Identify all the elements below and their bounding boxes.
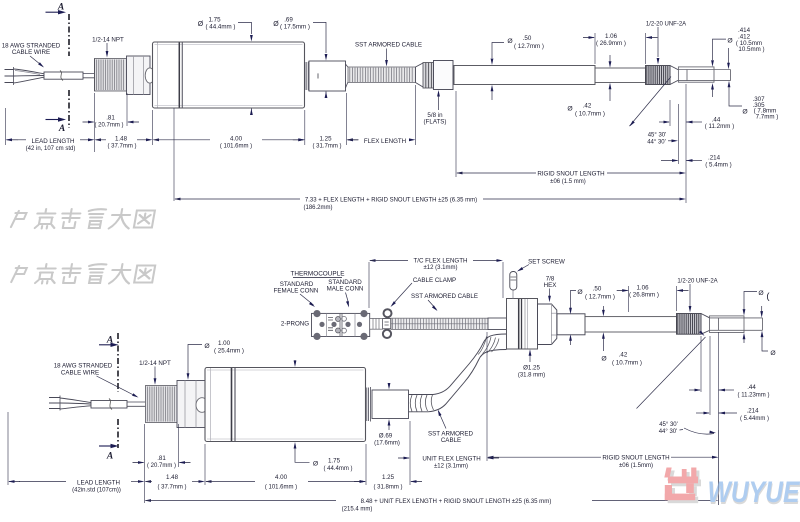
svg-text:8.48 + UNIT FLEX LENGTH + RIGI: 8.48 + UNIT FLEX LENGTH + RIGID SNOUT LE…	[361, 498, 552, 505]
svg-text:(42in.std (107cm)): (42in.std (107cm))	[72, 487, 121, 493]
svg-text:(31.8 mm): (31.8 mm)	[518, 372, 545, 378]
svg-text:A: A	[57, 3, 64, 13]
svg-text:WUYUE: WUYUE	[708, 476, 800, 509]
svg-text:( 101.6mm ): ( 101.6mm )	[265, 485, 297, 491]
svg-text:A: A	[58, 124, 65, 134]
svg-text:( 44.4mm ): ( 44.4mm )	[323, 466, 352, 472]
svg-text:Ø.69: Ø.69	[379, 432, 393, 439]
svg-text:.44: .44	[747, 384, 756, 391]
svg-text:4.00: 4.00	[275, 474, 288, 481]
svg-text:1.75: 1.75	[208, 17, 221, 24]
svg-text:.214: .214	[708, 154, 721, 161]
svg-text:( 5.44mm ): ( 5.44mm )	[740, 416, 769, 422]
svg-text:( 31.7mm ): ( 31.7mm )	[312, 143, 341, 149]
svg-text:CABLE: CABLE	[441, 437, 461, 444]
svg-text:1.48: 1.48	[115, 136, 128, 143]
svg-text:( 44.4mm ): ( 44.4mm )	[206, 24, 236, 31]
svg-text:HEX: HEX	[544, 282, 557, 289]
svg-text:T/C FLEX LENGTH: T/C FLEX LENGTH	[414, 257, 468, 264]
svg-text:(42 in, 107 cm std): (42 in, 107 cm std)	[26, 146, 76, 152]
svg-text:SET SCREW: SET SCREW	[528, 258, 565, 265]
svg-text:.214: .214	[746, 408, 759, 415]
svg-text:FLEX LENGTH: FLEX LENGTH	[364, 138, 406, 145]
svg-text:±06 (1.5mm): ±06 (1.5mm)	[619, 463, 653, 469]
svg-text:7.7mm ): 7.7mm )	[756, 114, 779, 121]
svg-text:Ø: Ø	[313, 460, 319, 467]
svg-text:( 17.5mm ): ( 17.5mm )	[280, 24, 310, 31]
svg-text:1.48: 1.48	[166, 474, 179, 481]
svg-text:7.33 + FLEX LENGTH + RIGID SNO: 7.33 + FLEX LENGTH + RIGID SNOUT LENGTH …	[305, 198, 477, 204]
svg-text:1.25: 1.25	[319, 136, 332, 143]
svg-text:( 26.9mm ): ( 26.9mm )	[596, 40, 626, 47]
svg-text:Ø: Ø	[770, 350, 776, 357]
svg-text:( 101.6mm ): ( 101.6mm )	[220, 143, 252, 149]
svg-text:MALE CONN: MALE CONN	[327, 286, 364, 293]
svg-text:1/2-20 UNF-2A: 1/2-20 UNF-2A	[677, 278, 717, 284]
svg-text:Ø: Ø	[204, 343, 210, 350]
svg-text:±12 (3.1mm): ±12 (3.1mm)	[434, 463, 468, 469]
svg-text:( 11.23mm ): ( 11.23mm )	[738, 393, 770, 399]
svg-text:.42: .42	[583, 103, 592, 110]
svg-text:Ø: Ø	[507, 38, 513, 45]
svg-text:THERMOCOUPLE: THERMOCOUPLE	[291, 270, 345, 277]
svg-text:( 20.7mm ): ( 20.7mm )	[94, 123, 123, 129]
svg-text:LEAD LENGTH: LEAD LENGTH	[77, 479, 120, 486]
svg-text:1/2-14 NPT: 1/2-14 NPT	[139, 360, 171, 367]
svg-text:1/2-20 UNF-2A: 1/2-20 UNF-2A	[646, 21, 686, 27]
svg-text:UNIT FLEX LENGTH: UNIT FLEX LENGTH	[422, 455, 480, 462]
svg-text:RIGID SNOUT LENGTH: RIGID SNOUT LENGTH	[602, 455, 669, 462]
svg-text:RIGID SNOUT LENGTH: RIGID SNOUT LENGTH	[537, 171, 604, 178]
svg-text:±12 (3.1mm): ±12 (3.1mm)	[424, 265, 458, 271]
svg-text:Ø: Ø	[601, 355, 607, 362]
svg-text:.50: .50	[593, 286, 602, 293]
svg-text:Ø: Ø	[198, 21, 204, 28]
svg-text:( 12.7mm ): ( 12.7mm )	[514, 43, 544, 50]
svg-text:44° 30': 44° 30'	[647, 139, 666, 145]
svg-text:Ø: Ø	[742, 109, 748, 116]
svg-text:4.00: 4.00	[230, 136, 243, 143]
svg-text:SST ARMORED CABLE: SST ARMORED CABLE	[411, 293, 478, 300]
svg-text:CABLE WIRE: CABLE WIRE	[12, 49, 50, 56]
svg-text:1.06: 1.06	[636, 284, 649, 291]
svg-text:( 31.8mm ): ( 31.8mm )	[373, 485, 402, 491]
svg-text:.81: .81	[157, 455, 166, 462]
svg-text:CABLE CLAMP: CABLE CLAMP	[413, 277, 456, 284]
svg-text:.69: .69	[284, 17, 293, 24]
svg-text:(FLATS): (FLATS)	[424, 119, 447, 126]
svg-text:( 10.7mm ): ( 10.7mm )	[612, 359, 642, 366]
svg-text:Ø: Ø	[727, 37, 733, 44]
svg-text:10.5mm ): 10.5mm )	[738, 46, 764, 53]
svg-text:Ø: Ø	[758, 290, 764, 297]
svg-text:( 20.7mm ): ( 20.7mm )	[147, 463, 176, 469]
svg-text:.81: .81	[106, 114, 115, 121]
svg-text:A: A	[106, 336, 113, 346]
svg-text:LEAD LENGTH: LEAD LENGTH	[32, 138, 75, 145]
svg-text:( 5.4mm ): ( 5.4mm )	[705, 162, 731, 169]
svg-text:1/2-14 NPT: 1/2-14 NPT	[92, 36, 124, 43]
svg-text:44° 30': 44° 30'	[659, 429, 678, 435]
svg-text:Ø1.25: Ø1.25	[523, 364, 540, 371]
svg-text:( 25.4mm ): ( 25.4mm )	[214, 348, 244, 355]
svg-text:Ø: Ø	[273, 21, 279, 28]
svg-text:2-PRONG: 2-PRONG	[281, 321, 309, 328]
svg-text:FEMALE CONN: FEMALE CONN	[274, 288, 319, 295]
svg-text:A: A	[106, 452, 113, 462]
svg-text:1.75: 1.75	[328, 457, 341, 464]
svg-text:Ø: Ø	[577, 289, 583, 296]
svg-text:±06 (1.5 mm): ±06 (1.5 mm)	[550, 179, 586, 185]
svg-text:( 11.2mm ): ( 11.2mm )	[705, 123, 734, 130]
svg-text:( 26.8mm ): ( 26.8mm )	[629, 291, 659, 298]
svg-text:.50: .50	[523, 35, 532, 42]
svg-text:(186.2mm): (186.2mm)	[303, 205, 332, 211]
svg-text:1.25: 1.25	[382, 474, 395, 481]
svg-text:45° 30': 45° 30'	[659, 422, 678, 428]
svg-text:Ø: Ø	[567, 106, 573, 113]
svg-text:(17.6mm): (17.6mm)	[374, 441, 400, 447]
svg-text:(215.4 mm): (215.4 mm)	[342, 507, 373, 513]
svg-text:( 37.7mm ): ( 37.7mm )	[157, 485, 186, 491]
svg-text:( 37.7mm ): ( 37.7mm )	[107, 143, 136, 149]
svg-text:CABLE WIRE: CABLE WIRE	[61, 369, 99, 376]
svg-text:45° 30': 45° 30'	[648, 133, 667, 139]
svg-text:( 12.7mm ): ( 12.7mm )	[585, 294, 615, 301]
svg-text:.42: .42	[619, 351, 628, 358]
svg-text:1.06: 1.06	[605, 33, 618, 40]
svg-text:SST ARMORED CABLE: SST ARMORED CABLE	[355, 42, 422, 49]
svg-text:1.00: 1.00	[218, 340, 231, 347]
svg-text:( 10.7mm ): ( 10.7mm )	[575, 111, 605, 118]
